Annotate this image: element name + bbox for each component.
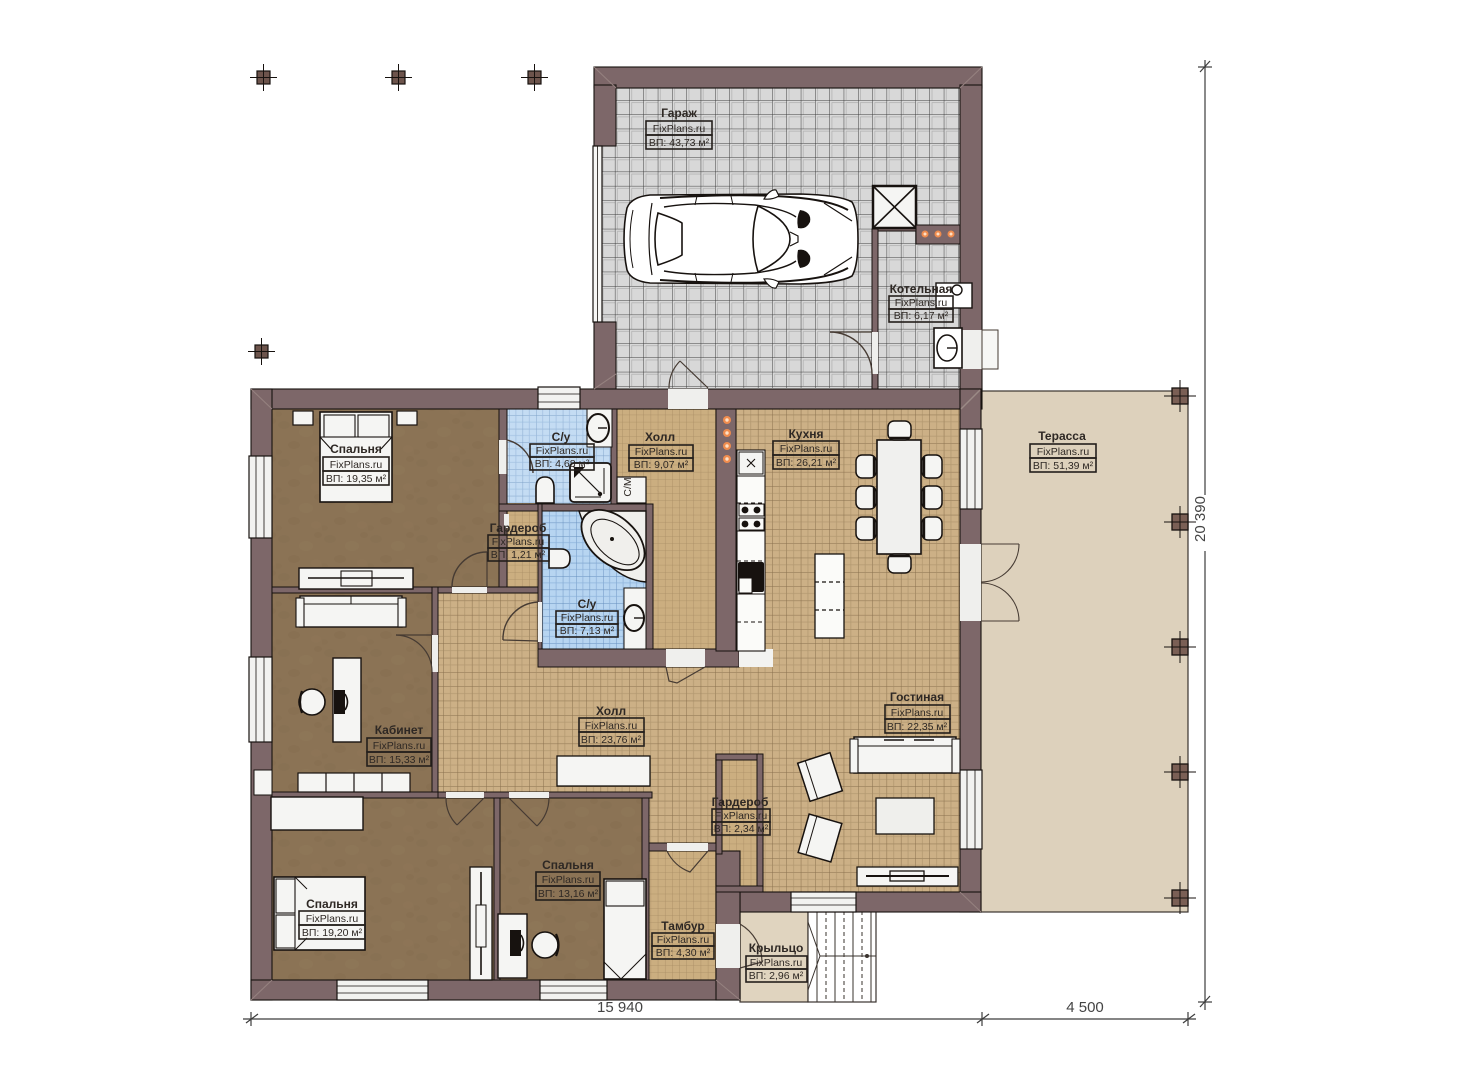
svg-text:ВП: 2,34 м²: ВП: 2,34 м² [714, 823, 769, 835]
svg-text:FixPlans.ru: FixPlans.ru [635, 446, 688, 458]
svg-text:Гостиная: Гостиная [890, 690, 944, 704]
svg-text:Гардероб: Гардероб [712, 795, 769, 809]
svg-text:Гардероб: Гардероб [490, 521, 547, 535]
svg-text:Тамбур: Тамбур [661, 919, 705, 933]
svg-text:ВП: 51,39 м²: ВП: 51,39 м² [1033, 460, 1094, 472]
svg-text:Котельная: Котельная [890, 282, 953, 296]
svg-text:С/у: С/у [552, 430, 571, 444]
svg-text:Терасса: Терасса [1038, 429, 1086, 443]
svg-text:FixPlans.ru: FixPlans.ru [653, 123, 706, 135]
svg-text:Крыльцо: Крыльцо [749, 941, 804, 955]
svg-text:Спальня: Спальня [306, 897, 358, 911]
svg-text:FixPlans.ru: FixPlans.ru [306, 913, 359, 925]
svg-text:FixPlans.ru: FixPlans.ru [542, 874, 595, 886]
svg-text:FixPlans.ru: FixPlans.ru [330, 459, 383, 471]
svg-text:ВП: 6,17 м²: ВП: 6,17 м² [894, 310, 949, 322]
svg-text:FixPlans.ru: FixPlans.ru [895, 297, 948, 309]
svg-text:ВП: 1,21 м²: ВП: 1,21 м² [491, 549, 546, 561]
svg-text:FixPlans.ru: FixPlans.ru [585, 720, 638, 732]
svg-text:FixPlans.ru: FixPlans.ru [657, 934, 710, 946]
svg-text:ВП: 7,13 м²: ВП: 7,13 м² [560, 625, 615, 637]
svg-text:Кухня: Кухня [788, 427, 823, 441]
svg-text:FixPlans.ru: FixPlans.ru [891, 707, 944, 719]
svg-text:4 500: 4 500 [1066, 999, 1104, 1016]
svg-text:ВП: 19,20 м²: ВП: 19,20 м² [302, 927, 363, 939]
svg-text:FixPlans.ru: FixPlans.ru [1037, 446, 1090, 458]
svg-text:ВП: 4,68 м²: ВП: 4,68 м² [535, 458, 590, 470]
svg-text:Спальня: Спальня [542, 858, 594, 872]
svg-text:Кабинет: Кабинет [375, 723, 424, 737]
svg-text:ВП: 15,33 м²: ВП: 15,33 м² [369, 754, 430, 766]
svg-text:ВП: 2,96 м²: ВП: 2,96 м² [749, 970, 804, 982]
svg-text:20 390: 20 390 [1192, 496, 1209, 542]
svg-text:ВП: 9,07 м²: ВП: 9,07 м² [634, 459, 689, 471]
svg-text:FixPlans.ru: FixPlans.ru [373, 740, 426, 752]
svg-text:С/М: С/М [622, 477, 634, 496]
svg-text:FixPlans.ru: FixPlans.ru [492, 536, 545, 548]
svg-text:ВП: 43,73 м²: ВП: 43,73 м² [649, 137, 710, 149]
svg-text:FixPlans.ru: FixPlans.ru [561, 612, 614, 624]
svg-text:FixPlans.ru: FixPlans.ru [715, 810, 768, 822]
svg-text:Спальня: Спальня [330, 442, 382, 456]
svg-text:ВП: 23,76 м²: ВП: 23,76 м² [581, 734, 642, 746]
svg-text:ВП: 22,35 м²: ВП: 22,35 м² [887, 721, 948, 733]
svg-text:FixPlans.ru: FixPlans.ru [536, 445, 589, 457]
svg-text:FixPlans.ru: FixPlans.ru [750, 957, 803, 969]
svg-text:ВП: 4,30 м²: ВП: 4,30 м² [656, 947, 711, 959]
svg-text:ВП: 13,16 м²: ВП: 13,16 м² [538, 888, 599, 900]
svg-text:Гараж: Гараж [661, 106, 697, 120]
svg-text:С/у: С/у [578, 597, 597, 611]
svg-text:ВП: 19,35 м²: ВП: 19,35 м² [326, 473, 387, 485]
svg-text:15 940: 15 940 [597, 999, 643, 1016]
svg-text:Холл: Холл [645, 430, 675, 444]
svg-text:Холл: Холл [596, 704, 626, 718]
svg-text:ВП: 26,21 м²: ВП: 26,21 м² [776, 457, 837, 469]
svg-text:FixPlans.ru: FixPlans.ru [780, 443, 833, 455]
